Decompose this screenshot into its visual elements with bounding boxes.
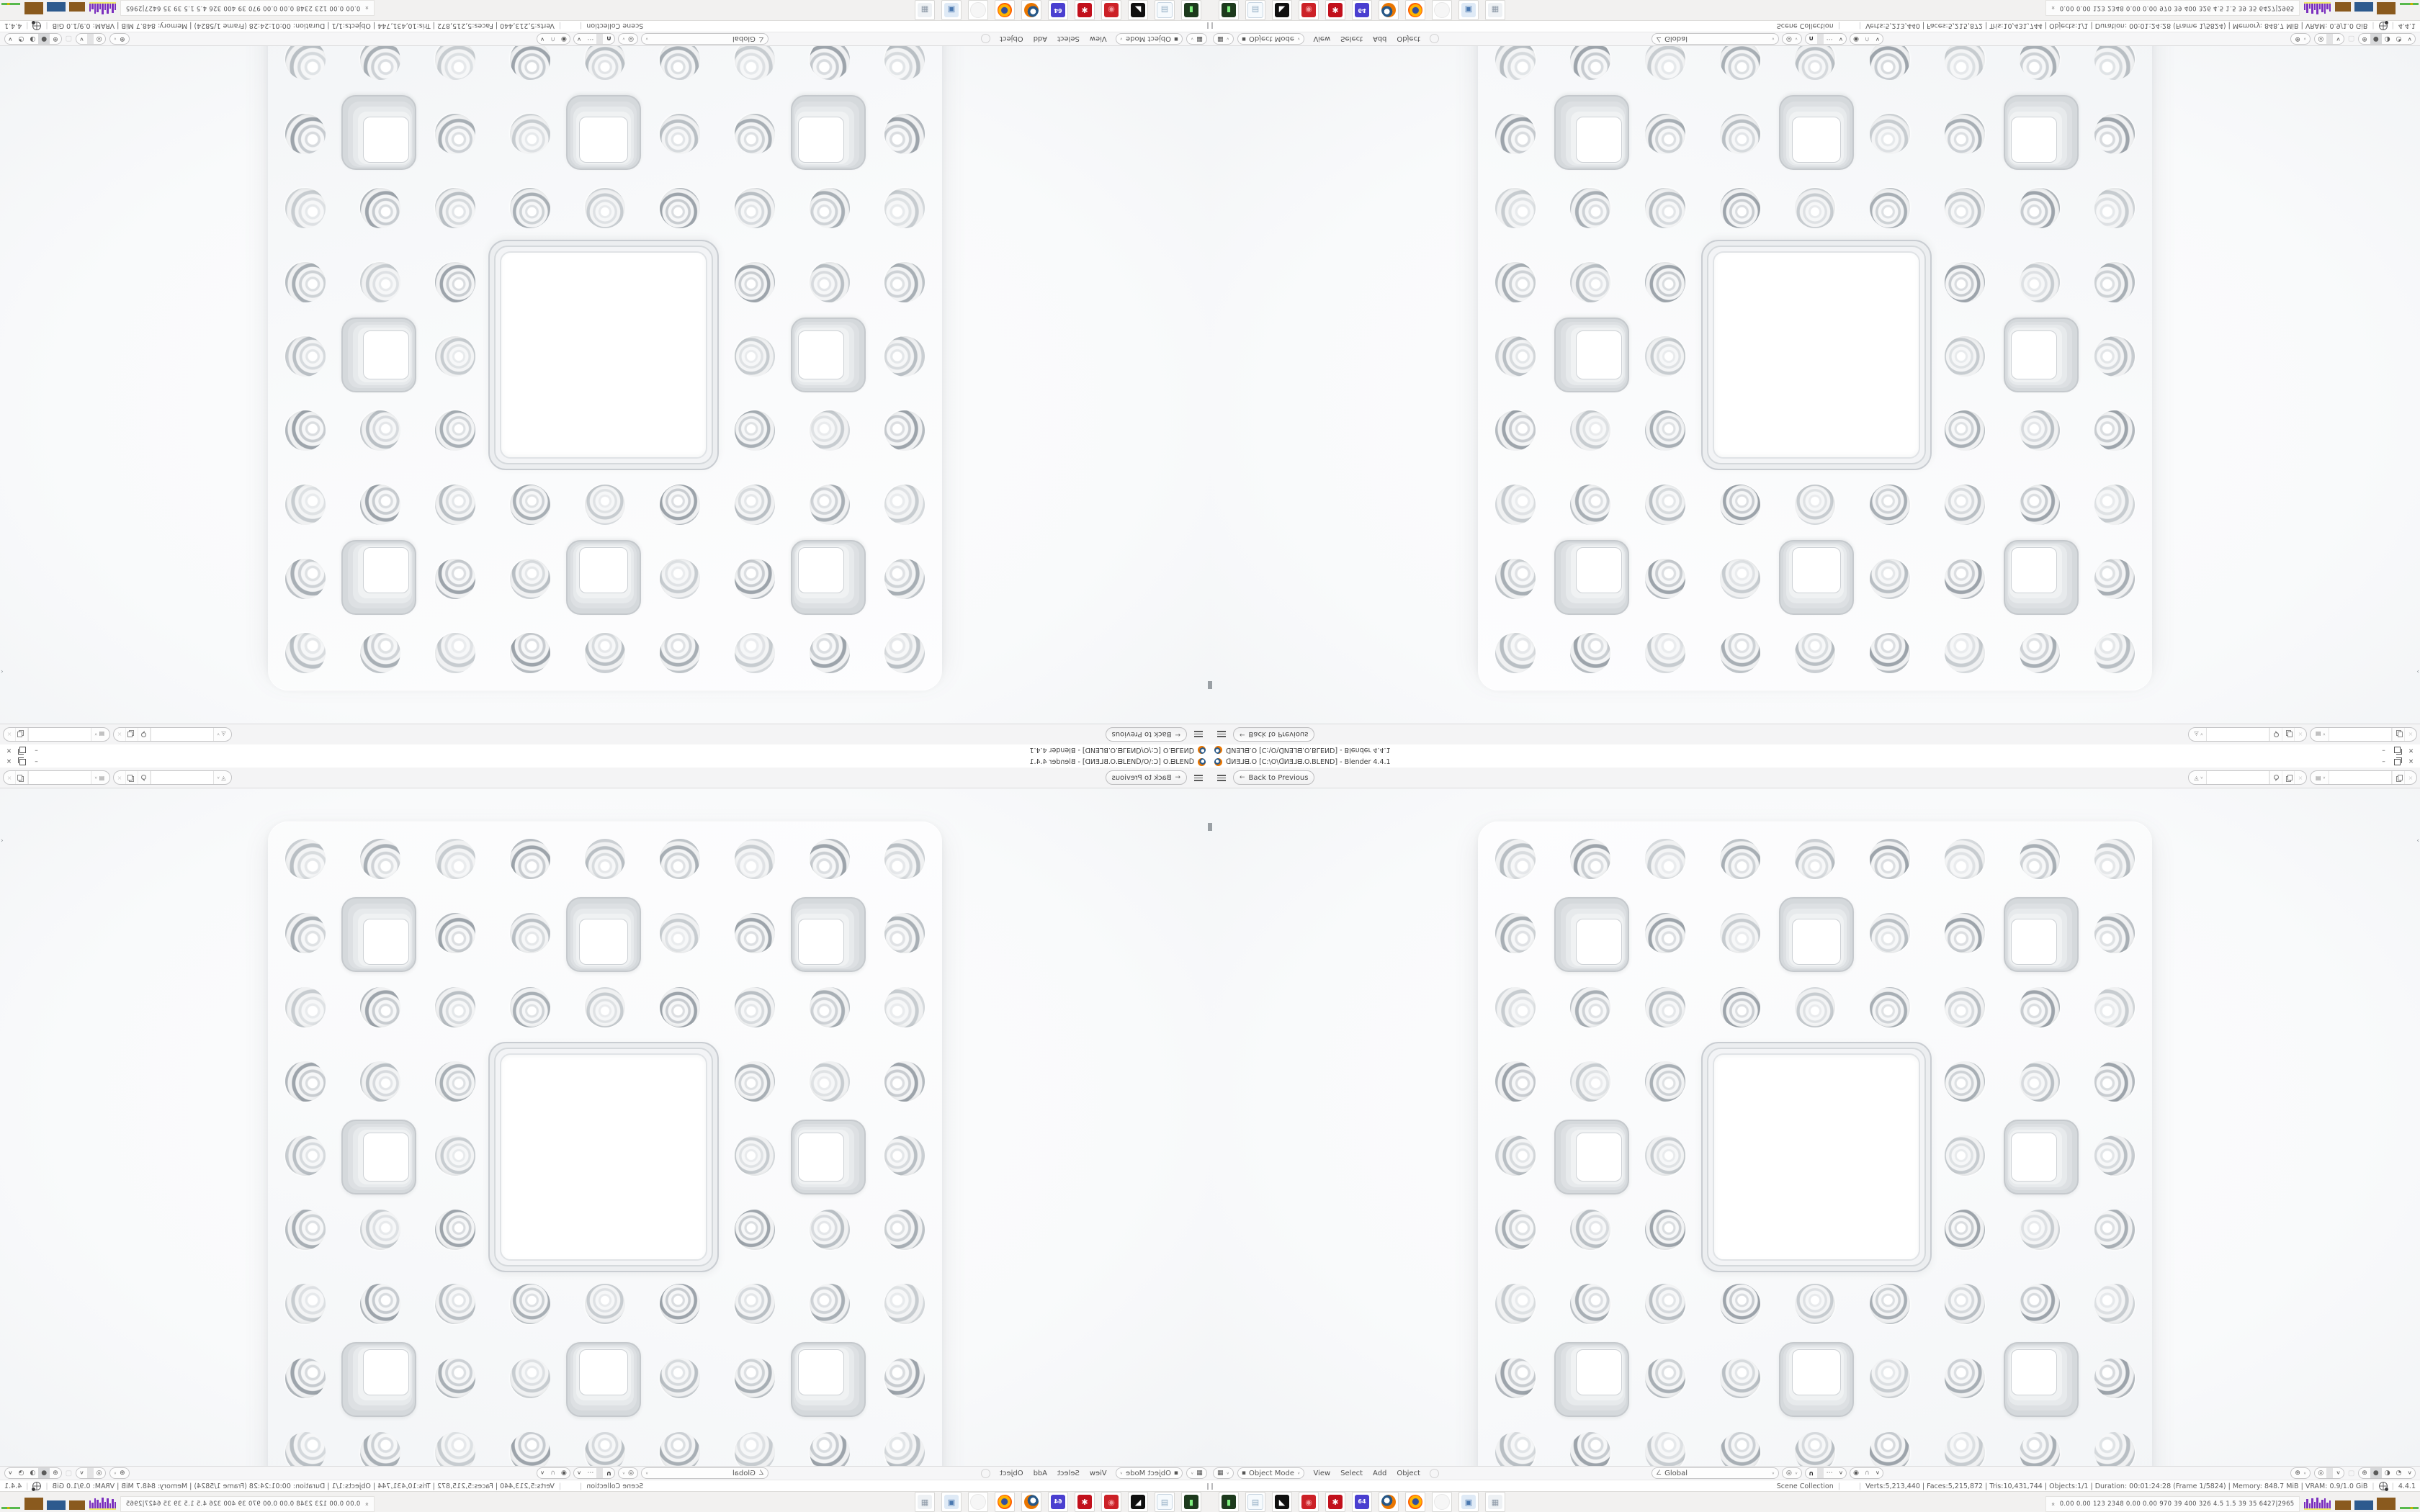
menu-view[interactable]: View [1090,1470,1107,1477]
calculator-app[interactable]: ▦ [1485,0,1505,20]
hamburger-menu-icon[interactable] [1217,775,1226,781]
display-settings-app[interactable]: ▣ [941,0,962,20]
scene-selector[interactable]: ◬∨ × [113,727,232,742]
gizmos-dropdown[interactable]: ⊕ ∨ [2290,33,2311,45]
menu-select[interactable]: Select [1057,35,1080,43]
fractal-round-hole [1645,1210,1685,1250]
console-app[interactable]: ▮ [1219,0,1239,20]
scene-selector[interactable]: ◬∨ × [113,770,232,785]
editor-type-button[interactable]: ▦ ∨ [1186,1467,1207,1479]
fractal-round-hole [2094,987,2135,1027]
calculator-app[interactable]: ▦ [1485,1492,1505,1512]
fractal-round-hole [1570,188,1610,228]
fractal-square-hole [341,540,416,615]
pivot-point-dropdown[interactable]: ◎ ∨ [618,1467,638,1479]
minimize-button[interactable]: – [31,746,42,755]
menu-object[interactable]: Object [1000,1470,1023,1477]
fractal-round-hole [884,262,925,302]
fractal-round-hole [1645,336,1685,377]
snap-group[interactable]: ∪ ⋯ ∨ [1805,33,1847,45]
back-to-previous-button[interactable]: ← Back to Previous [1106,727,1187,742]
scene-stats: Verts:5,213,440 | Faces:5,215,872 | Tris… [53,22,555,30]
overlays-icon[interactable]: ◎ [94,34,105,44]
notepad-app[interactable]: ▤ [1245,1492,1265,1512]
sidebar-collapsed-arrow[interactable]: ‹ [1,667,4,675]
fractal-round-hole [1720,839,1760,879]
sidebar-collapsed-arrow[interactable]: ‹ [2416,667,2419,675]
back-to-previous-button[interactable]: ← Back to Previous [1233,727,1314,742]
xray-toggle[interactable]: ▢ [2348,35,2354,43]
red-gear-app[interactable]: ✱ [1325,0,1345,20]
screen-mirror-both: ᗡИƎ⅃ᗺ.O [C:\O\ᗡИƎ⅃ᗺ.O.BLEND] - Blender 4… [0,0,1210,756]
fractal-round-hole [1945,410,1985,451]
pivot-point-dropdown[interactable]: ◎ ∨ [1782,33,1802,45]
object-mode-icon: ▪ [1242,35,1246,42]
falloff-icon[interactable]: ∩ [1862,34,1873,44]
red-dial-app[interactable]: ◉ [1101,1492,1121,1512]
fractal-square-hole [791,95,866,170]
pivot-point-dropdown[interactable]: ◎ ∨ [1782,1467,1802,1479]
menu-add[interactable]: Add [1034,35,1047,43]
chevron-down-icon: ∨ [1297,37,1300,41]
red-gear-app[interactable]: ✱ [1075,1492,1095,1512]
shading-rendered-button[interactable]: ◔ [16,1468,27,1478]
fractal-round-hole [884,1135,925,1176]
viewport-3d[interactable]: ‹ [0,45,1210,724]
blender-app[interactable] [1021,0,1041,20]
menu-view[interactable]: View [1090,35,1107,43]
fractal-round-hole [2020,1061,2060,1102]
display-settings-app[interactable]: ▣ [1458,0,1479,20]
calculator-app[interactable]: ▦ [915,0,935,20]
transform-orientation-dropdown[interactable]: ∠ Global ∨ [641,33,768,45]
ghost-app-icon [1434,2,1450,18]
blender-version: 4.4.1 [2398,1482,2416,1490]
fractal-slab [1478,822,2152,1490]
blender-app[interactable] [1379,0,1399,20]
red-dial-app[interactable]: ◉ [1299,0,1319,20]
ghost-app[interactable] [968,1492,988,1512]
menu-select[interactable]: Select [1340,35,1363,43]
new-scene-button[interactable] [2282,771,2294,784]
tray-expand-icon[interactable]: « [2049,1502,2056,1506]
fractal-round-hole [884,336,925,377]
falloff-icon[interactable]: ∩ [547,1468,558,1478]
notepad-app[interactable]: ▤ [1245,0,1265,20]
hamburger-menu-icon[interactable] [1217,731,1226,737]
new-scene-button[interactable] [2282,728,2294,741]
chevron-down-icon: ∨ [94,732,97,737]
fractal-square-hole [341,1120,416,1194]
fractal-square-hole [2004,1120,2079,1194]
view-layer-name-field[interactable] [2329,771,2392,784]
xray-toggle[interactable]: ▢ [2348,1470,2354,1477]
fractal-slab [1478,22,2152,690]
view-layer-icon: ▤∨ [91,775,109,781]
toolbar-collapsed-arrow[interactable] [1210,823,1212,831]
chevron-down-icon: ∨ [1191,1471,1193,1475]
overlays-group[interactable]: ◎ ∨ [76,33,105,45]
editor-type-button[interactable]: ▦ ∨ [1186,33,1207,45]
chevron-down-icon: ∨ [2303,37,2306,41]
chevron-down-icon: ∨ [645,1471,648,1475]
fractal-round-hole [1645,262,1685,302]
fractal-round-hole [1720,913,1760,953]
back-to-previous-button[interactable]: ← Back to Previous [1233,770,1314,785]
scene-name-field[interactable] [151,728,214,741]
overlays-icon[interactable]: ◎ [94,1468,105,1478]
firefox-app[interactable] [1405,1492,1425,1512]
snap-with-icon[interactable]: ⋯ [1824,34,1836,44]
close-button[interactable]: × [4,757,14,766]
sidebar-collapsed-arrow[interactable]: ‹ [2416,837,2419,845]
proportional-edit-group[interactable]: ◉ ∩ ∨ [537,1467,570,1479]
fractal-round-hole [2020,485,2060,525]
fractal-round-hole [1945,114,1985,154]
floppy-64-app[interactable]: 64 [1352,0,1372,20]
menu-select[interactable]: Select [1057,1470,1080,1477]
menu-object[interactable]: Object [1397,1470,1420,1477]
system-tray: « 0.00 0.00 123 2348 0.00 0.00 970 39 40… [2045,1492,2420,1512]
console-app-icon: ▮ [1184,3,1198,17]
shading-rendered-button[interactable]: ◔ [2393,34,2405,44]
active-collection: Scene Collection [1777,1482,1834,1490]
proportional-edit-icon[interactable]: ◉ [558,34,570,44]
shading-material-button[interactable]: ◑ [2382,1468,2393,1478]
fractal-round-hole [360,1210,400,1250]
magnet-icon[interactable]: ∪ [603,1468,614,1478]
fractal-round-hole [360,188,400,228]
display-settings-app-icon: ▣ [1461,3,1476,17]
ghost-app[interactable] [1432,0,1452,20]
mode-dropdown[interactable]: ▪ Object Mode ∨ [1237,1467,1305,1479]
fractal-round-hole [1495,114,1536,154]
tray-expand-icon[interactable]: « [2049,6,2056,10]
pin-button[interactable] [2269,728,2282,741]
falloff-icon[interactable]: ∩ [547,34,558,44]
floppy-64-app[interactable]: 64 [1048,0,1068,20]
fractal-round-hole [660,114,700,154]
shading-material-button[interactable]: ◑ [27,34,38,44]
fractal-round-hole [2094,485,2135,525]
scene-icon: ◬∨ [2189,732,2206,738]
viewport-3d[interactable]: ‹ [1210,45,2420,724]
console-app[interactable]: ▮ [1181,1492,1201,1512]
menu-object[interactable]: Object [1000,35,1023,43]
overlays-icon[interactable]: ◎ [2315,1468,2326,1478]
floppy-64-app[interactable]: 64 [1048,1492,1068,1512]
red-gear-app[interactable]: ✱ [1075,0,1095,20]
fractal-round-hole [884,188,925,228]
fractal-round-hole [435,913,475,953]
fractal-round-hole [810,839,850,879]
scene-selector[interactable]: ◬∨ × [2188,770,2307,785]
fractal-square-hole [1554,318,1629,392]
display-settings-app[interactable]: ▣ [1458,1492,1479,1512]
toolbar-collapsed-arrow[interactable] [1209,681,1211,689]
snap-group[interactable]: ∪ ⋯ ∨ [573,1467,615,1479]
fractal-round-hole [884,1284,925,1324]
close-button[interactable]: × [2406,746,2416,755]
fractal-round-hole [660,987,700,1027]
view-layer-selector[interactable]: ▤∨ × [3,727,110,742]
image-viewer-app[interactable]: ◣ [1272,0,1292,20]
back-to-previous-button[interactable]: ← Back to Previous [1106,770,1187,785]
ghost-app[interactable] [1432,1492,1452,1512]
tray-blocks [2335,1498,2396,1510]
toolbar-collapsed-arrow[interactable] [1209,823,1211,831]
pin-button[interactable] [2269,771,2282,784]
fractal-square-hole [1554,1342,1629,1417]
fractal-round-hole [2094,188,2135,228]
new-scene-button[interactable] [126,771,138,784]
fractal-round-hole [2094,262,2135,302]
red-gear-app[interactable]: ✱ [1325,1492,1345,1512]
snap-with-icon[interactable]: ⋯ [584,1468,596,1478]
chevron-down-icon: ∨ [217,732,220,737]
scene-name-field[interactable] [2206,771,2269,784]
fractal-round-hole [1945,1210,1985,1250]
firefox-app[interactable] [995,0,1015,20]
tray-expand-icon[interactable]: « [364,6,371,10]
shading-wireframe-button[interactable]: ⊕ [2359,34,2370,44]
close-button[interactable]: × [4,746,14,755]
new-view-layer-button[interactable] [16,728,28,741]
overlays-group[interactable]: ◎ ∨ [2314,33,2344,45]
hamburger-menu-icon[interactable] [1194,731,1203,737]
snap-with-icon[interactable]: ⋯ [1824,1468,1836,1478]
red-dial-app[interactable]: ◉ [1299,1492,1319,1512]
fractal-round-hole [1495,1358,1536,1398]
fractal-round-hole [2094,1358,2135,1398]
hamburger-menu-icon[interactable] [1194,775,1203,781]
magnet-icon[interactable]: ∪ [603,34,614,44]
falloff-icon[interactable]: ∩ [1862,1468,1873,1478]
fractal-round-hole [360,262,400,302]
ghost-app[interactable] [968,0,988,20]
blender-app[interactable] [1379,1492,1399,1512]
calculator-app[interactable]: ▦ [915,1492,935,1512]
overlays-group[interactable]: ◎ ∨ [76,1467,105,1479]
xray-toggle[interactable]: ▢ [66,1470,72,1477]
fractal-round-hole [1645,1284,1685,1324]
editor-type-button[interactable]: ▦ ∨ [1213,1467,1234,1479]
overlays-icon[interactable]: ◎ [2315,34,2326,44]
view-layer-selector[interactable]: ▤∨ × [2310,770,2417,785]
snap-group[interactable]: ∪ ⋯ ∨ [1805,1467,1847,1479]
proportional-edit-icon[interactable]: ◉ [558,1468,570,1478]
transform-orientation-dropdown[interactable]: ∠ Global ∨ [1652,33,1779,45]
restore-button[interactable] [2392,757,2403,766]
magnet-icon[interactable]: ∪ [1806,1468,1816,1478]
fractal-round-hole [1495,839,1536,879]
viewport-3d[interactable]: ‹ [0,788,1210,1467]
red-dial-app-icon: ◉ [1301,1495,1316,1509]
view-layer-name-field[interactable] [28,728,91,741]
menu-view[interactable]: View [1313,1470,1330,1477]
fractal-round-hole [360,987,400,1027]
calculator-app-icon: ▦ [1488,3,1502,17]
tray-network-graph [2400,3,2419,5]
blender-app-icon [1381,1495,1396,1509]
pivot-point-dropdown[interactable]: ◎ ∨ [618,33,638,45]
fractal-square-hole [566,897,641,972]
fractal-round-hole [510,1284,550,1324]
proportional-edit-icon[interactable]: ◉ [1850,34,1862,44]
proportional-edit-icon[interactable]: ◉ [1850,1468,1862,1478]
new-view-layer-button[interactable] [2392,771,2404,784]
shading-solid-button[interactable]: ● [2370,1468,2382,1478]
firefox-app-icon [1408,1495,1422,1509]
red-dial-app[interactable]: ◉ [1101,0,1121,20]
proportional-edit-group[interactable]: ◉ ∩ ∨ [1850,33,1883,45]
snap-with-icon[interactable]: ⋯ [584,34,596,44]
image-viewer-app-icon: ◣ [1131,3,1145,17]
snap-group[interactable]: ∪ ⋯ ∨ [573,33,615,45]
pin-button[interactable] [138,728,151,741]
fractal-square-hole [791,540,866,615]
view-layer-name-field[interactable] [28,771,91,784]
fractal-square-hole [791,897,866,972]
close-button[interactable]: × [2406,757,2416,766]
shading-rendered-button[interactable]: ◔ [16,34,27,44]
firefox-app[interactable] [1405,0,1425,20]
fractal-round-hole [510,485,550,525]
shading-wireframe-button[interactable]: ⊕ [2359,1468,2370,1478]
mode-dropdown[interactable]: ▪ Object Mode ∨ [1116,33,1183,45]
taskbar-apps: ▮▤◣◉✱64▣▦ [915,0,1210,20]
scene-name-field[interactable] [151,771,214,784]
os-taskbar: ▮▤◣◉✱64▣▦ « 0.00 0.00 123 2348 0.00 0.00… [1210,1491,2420,1512]
blender-app[interactable] [1021,1492,1041,1512]
object-mode-icon: ▪ [1174,35,1178,42]
fractal-square-hole [1554,897,1629,972]
tray-expand-icon[interactable]: « [364,1502,371,1506]
console-app[interactable]: ▮ [1219,1492,1239,1512]
proportional-edit-group[interactable]: ◉ ∩ ∨ [1850,1467,1883,1479]
fractal-round-hole [585,633,625,673]
shading-solid-button[interactable]: ● [38,1468,50,1478]
fractal-round-hole [1945,633,1985,673]
notepad-app[interactable]: ▤ [1155,0,1175,20]
fractal-round-hole [285,913,326,953]
firefox-app[interactable] [995,1492,1015,1512]
console-app[interactable]: ▮ [1181,0,1201,20]
menu-select[interactable]: Select [1340,1470,1363,1477]
view-layer-selector[interactable]: ▤∨ × [3,770,110,785]
shading-wireframe-button[interactable]: ⊕ [50,1468,61,1478]
new-view-layer-button[interactable] [16,771,28,784]
image-viewer-app[interactable]: ◣ [1272,1492,1292,1512]
minimize-button[interactable]: – [2378,746,2389,755]
transform-orientation-dropdown[interactable]: ∠ Global ∨ [1652,1467,1779,1479]
gizmos-dropdown[interactable]: ⊕ ∨ [2290,1467,2311,1479]
image-viewer-app[interactable]: ◣ [1128,1492,1148,1512]
overlays-group[interactable]: ◎ ∨ [2314,1467,2344,1479]
image-viewer-app[interactable]: ◣ [1128,0,1148,20]
shading-material-button[interactable]: ◑ [27,1468,38,1478]
view-layer-selector[interactable]: ▤∨ × [2310,727,2417,742]
fractal-round-hole [1720,633,1760,673]
fractal-round-hole [285,633,326,673]
menu-object[interactable]: Object [1397,35,1420,43]
gizmos-dropdown[interactable]: ⊕ ∨ [109,1467,130,1479]
restore-button[interactable] [17,746,28,755]
red-gear-app-icon: ✱ [1328,3,1343,17]
fractal-round-hole [285,839,326,879]
shading-solid-button[interactable]: ● [2370,34,2382,44]
floppy-64-app[interactable]: 64 [1352,1492,1372,1512]
shading-mode-group: ⊕ ● ◑ ◔ ∨ [4,1467,62,1479]
shading-rendered-button[interactable]: ◔ [2393,1468,2405,1478]
mode-dropdown[interactable]: ▪ Object Mode ∨ [1237,33,1305,45]
minimize-button[interactable]: – [31,757,42,766]
pin-button[interactable] [138,771,151,784]
blender-version: 4.4.1 [4,22,22,30]
transform-orientation-dropdown[interactable]: ∠ Global ∨ [641,1467,768,1479]
fractal-round-hole [1720,485,1760,525]
fractal-round-hole [285,262,326,302]
restore-icon [2394,747,2401,754]
shading-wireframe-button[interactable]: ⊕ [50,34,61,44]
scene-name-field[interactable] [2206,728,2269,741]
restore-icon [2394,759,2401,765]
editor-type-button[interactable]: ▦ ∨ [1213,33,1234,45]
toolbar-collapsed-arrow[interactable] [1210,681,1212,689]
system-tray: « 0.00 0.00 123 2348 0.00 0.00 970 39 40… [0,0,375,20]
mode-dropdown[interactable]: ▪ Object Mode ∨ [1116,1467,1183,1479]
gizmo-icon: ⊕ [120,1470,125,1477]
menu-add[interactable]: Add [1034,1470,1047,1477]
new-view-layer-button[interactable] [2392,728,2404,741]
fractal-round-hole [1795,987,1835,1027]
new-scene-button[interactable] [126,728,138,741]
viewport-3d[interactable]: ‹ [1210,788,2420,1467]
online-access-icon [32,1482,41,1490]
fractal-square-hole [1779,897,1854,972]
back-arrow-icon: ← [1240,774,1245,781]
viewport-header: ▦ ∨ ▪ Object Mode ∨ View Select Add Obje… [1210,32,2420,46]
chevron-down-icon: ∨ [2333,1469,2344,1477]
menu-view[interactable]: View [1313,35,1330,43]
gizmos-dropdown[interactable]: ⊕ ∨ [109,33,130,45]
notepad-app[interactable]: ▤ [1155,1492,1175,1512]
minimize-button[interactable]: – [2378,757,2389,766]
restore-button[interactable] [17,757,28,766]
fractal-round-hole [1945,559,1985,599]
view-layer-name-field[interactable] [2329,728,2392,741]
proportional-edit-group[interactable]: ◉ ∩ ∨ [537,33,570,45]
xray-toggle[interactable]: ▢ [66,35,72,43]
shading-material-button[interactable]: ◑ [2382,34,2393,44]
restore-button[interactable] [2392,746,2403,755]
chevron-down-icon: ∨ [2333,35,2344,42]
shading-solid-button[interactable]: ● [38,34,50,44]
scene-selector[interactable]: ◬∨ × [2188,727,2307,742]
fractal-round-hole [510,1358,550,1398]
display-settings-app[interactable]: ▣ [941,1492,962,1512]
online-access-icon [2379,22,2388,30]
sidebar-collapsed-arrow[interactable]: ‹ [1,837,4,845]
magnet-icon[interactable]: ∪ [1806,34,1816,44]
fractal-round-hole [1645,987,1685,1027]
window-title: ᗡИƎ⅃ᗺ.O [C:\O\ᗡИƎ⅃ᗺ.O.BLEND] - Blender 4… [1029,747,1194,755]
menu-add[interactable]: Add [1373,1470,1386,1477]
chevron-down-icon: ∨ [1227,1471,1229,1475]
statusbar-handle [1207,1483,1209,1490]
menu-add[interactable]: Add [1373,35,1386,43]
active-tool-icon [1430,1469,1439,1478]
